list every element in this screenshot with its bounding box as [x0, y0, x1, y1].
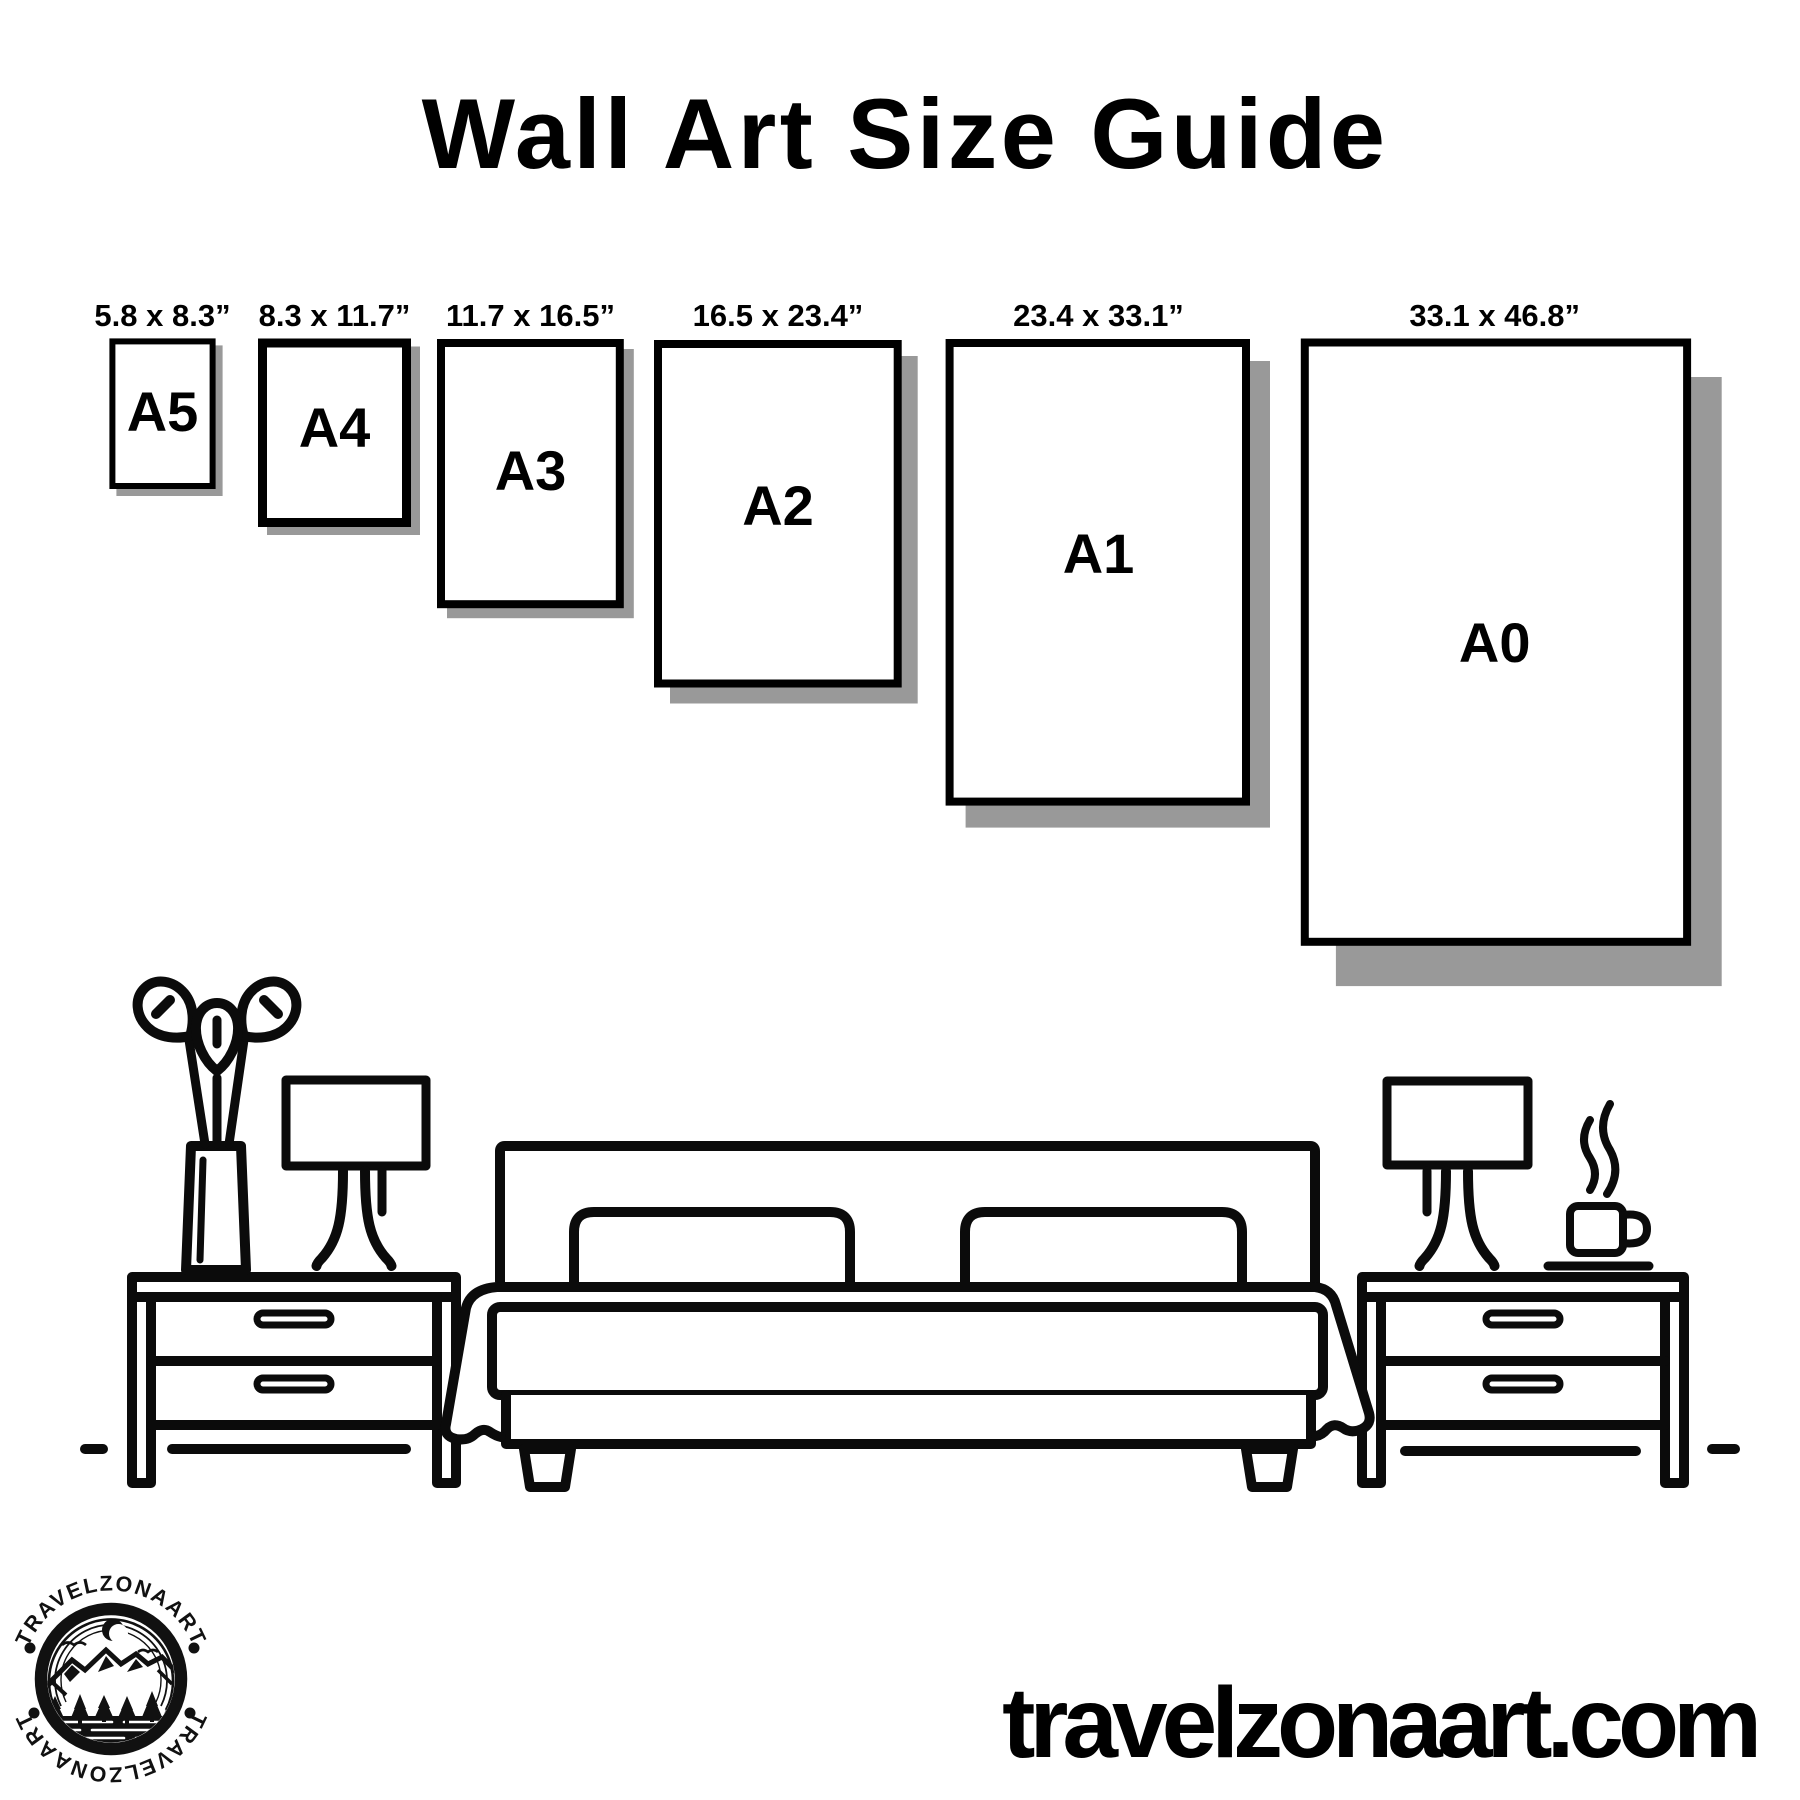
svg-text:11.7 x 16.5”: 11.7 x 16.5” — [446, 298, 615, 333]
svg-text:A1: A1 — [1063, 522, 1135, 585]
svg-text:A5: A5 — [127, 380, 199, 443]
svg-text:A0: A0 — [1459, 611, 1531, 674]
svg-text:33.1 x 46.8”: 33.1 x 46.8” — [1409, 298, 1580, 333]
svg-text:travelzonaart.com: travelzonaart.com — [1002, 1667, 1756, 1779]
svg-text:16.5 x 23.4”: 16.5 x 23.4” — [693, 298, 864, 333]
svg-text:A4: A4 — [299, 396, 371, 459]
svg-text:A2: A2 — [742, 474, 814, 537]
svg-text:23.4 x 33.1”: 23.4 x 33.1” — [1013, 298, 1184, 333]
svg-text:8.3 x 11.7”: 8.3 x 11.7” — [259, 298, 411, 333]
svg-text:A3: A3 — [495, 439, 567, 502]
svg-text:5.8 x 8.3”: 5.8 x 8.3” — [94, 298, 230, 333]
svg-text:Wall Art Size Guide: Wall Art Size Guide — [422, 78, 1389, 189]
